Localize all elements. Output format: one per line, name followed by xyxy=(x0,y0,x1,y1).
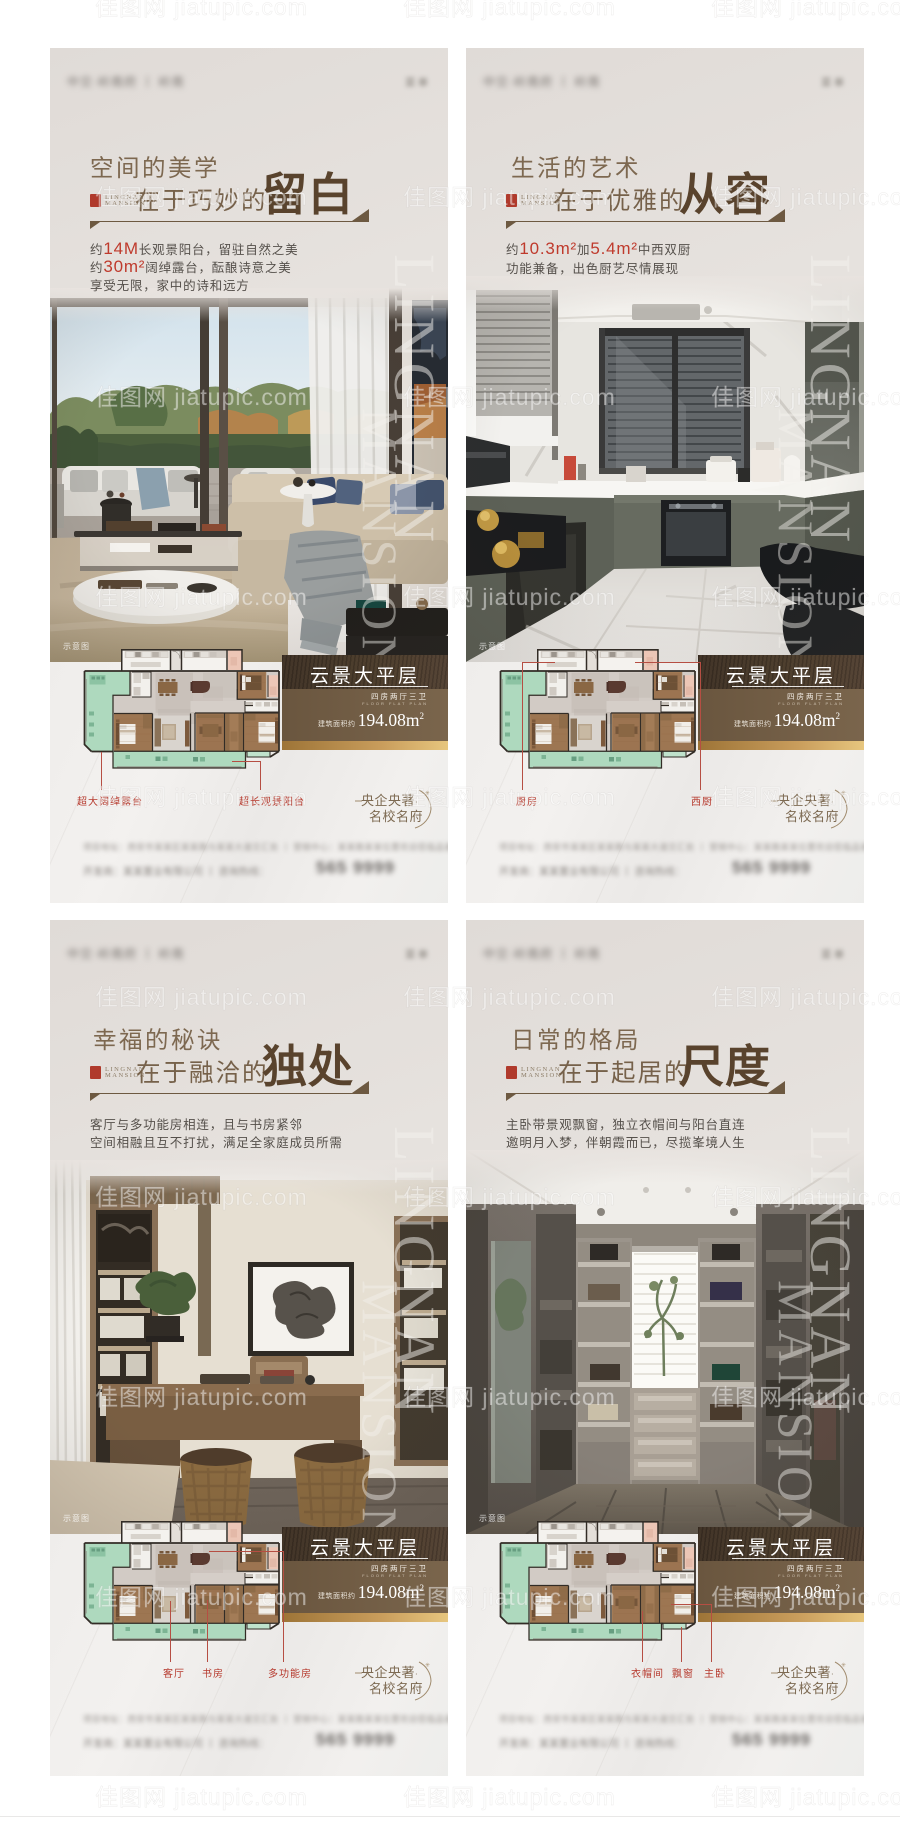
svg-text:✳: ✳ xyxy=(425,1662,430,1669)
svg-text:✳: ✳ xyxy=(841,1662,846,1669)
svg-text:✳: ✳ xyxy=(841,790,846,797)
svg-text:✳: ✳ xyxy=(425,790,430,797)
